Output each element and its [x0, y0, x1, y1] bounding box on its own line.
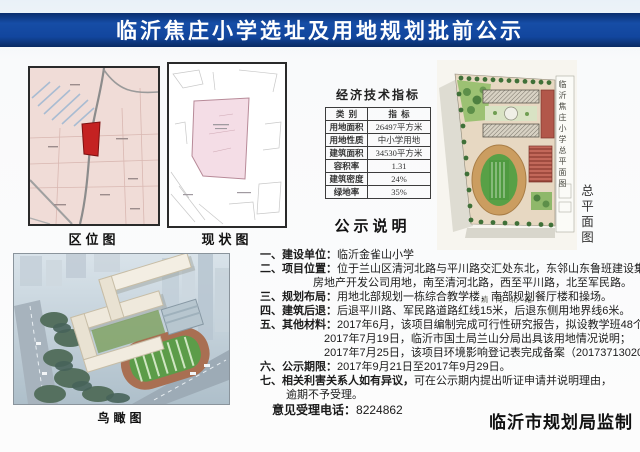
- notice-line: 七、相关利害关系人如有异议，可在公示期内提出听证申请并说明理由，: [260, 374, 632, 388]
- notice-line: 三、规划布局：用地北部规划一栋综合教学楼，南部规划餐厅楼和操场。: [260, 290, 632, 304]
- notice-line: 一、建设单位：临沂金雀山小学: [260, 248, 632, 262]
- table-row: 建筑面积34530平方米: [326, 147, 431, 160]
- notice-line: 2017年7月19日，临沂市国土局兰山分局出具该用地情况说明；: [260, 332, 632, 346]
- status-map: [167, 62, 287, 228]
- row-value: 34530平方米: [368, 147, 431, 160]
- site-plan-graphic: [437, 60, 577, 250]
- row-label: 建筑面积: [326, 147, 368, 160]
- site-plan-inner-title: 临沂焦庄小学总平面图: [557, 80, 568, 190]
- location-map-caption: 区位图: [28, 229, 160, 248]
- notice-section-title: 公示说明: [300, 215, 445, 236]
- phone-number: 8224862: [356, 403, 403, 417]
- table-row: 建筑密度24%: [326, 173, 431, 186]
- row-label: 容积率: [326, 160, 368, 173]
- contact-phone-line: 意见受理电话：8224862: [272, 401, 403, 418]
- notice-line: 二、项目位置：位于兰山区清河北路与平川路交汇处东北，东邻山东鲁班建设集团: [260, 262, 632, 276]
- planning-notice-poster: 临沂焦庄小学选址及用地规划批前公示: [0, 0, 640, 452]
- birdseye-graphic: [14, 254, 229, 404]
- row-label: 用地性质: [326, 134, 368, 147]
- notice-line: 四、建筑后退：后退平川路、军民路道路红线15米，后退东侧用地界线6米。: [260, 304, 632, 318]
- row-value: 35%: [368, 186, 431, 199]
- status-map-caption: 现状图: [167, 229, 287, 248]
- row-value: 1.31: [368, 160, 431, 173]
- col-header-value: 指 标: [368, 108, 431, 121]
- table-row: 用地性质中小学用地: [326, 134, 431, 147]
- notice-line: 五、其他材料：2017年6月，该项目编制完成可行性研究报告，拟设教学班48个，: [260, 318, 632, 332]
- table-row: 绿地率35%: [326, 186, 431, 199]
- phone-label: 意见受理电话：: [272, 403, 356, 417]
- notice-list: 一、建设单位：临沂金雀山小学 二、项目位置：位于兰山区清河北路与平川路交汇处东北…: [260, 248, 632, 402]
- indicators-table: 类 别 指 标 用地面积26497平方米 用地性质中小学用地 建筑面积34530…: [325, 107, 431, 199]
- row-value: 中小学用地: [368, 134, 431, 147]
- status-map-graphic: [169, 64, 285, 226]
- row-value: 26497平方米: [368, 121, 431, 134]
- page-title: 临沂焦庄小学选址及用地规划批前公示: [116, 15, 524, 45]
- notice-line: 2017年7月25日，该项目环境影响登记表完成备案（20173713020000…: [260, 346, 632, 360]
- row-label: 用地面积: [326, 121, 368, 134]
- birdseye-caption: 鸟瞰图: [13, 409, 230, 426]
- notice-line: 逾期不予受理。: [260, 388, 632, 402]
- row-label: 建筑密度: [326, 173, 368, 186]
- title-banner: 临沂焦庄小学选址及用地规划批前公示: [0, 13, 640, 47]
- notice-line: 六、公示期限：2017年9月21日至2017年9月29日。: [260, 360, 632, 374]
- indicators-title: 经济技术指标: [322, 86, 434, 103]
- location-map: [28, 66, 160, 226]
- table-row: 用地面积26497平方米: [326, 121, 431, 134]
- indicators-panel: 经济技术指标 类 别 指 标 用地面积26497平方米 用地性质中小学用地 建筑…: [322, 86, 434, 199]
- site-plan-map: [437, 60, 577, 250]
- producer-signature: 临沂市规划局监制: [489, 408, 633, 433]
- location-map-graphic: [30, 68, 158, 224]
- birdseye-render: [13, 253, 230, 405]
- col-header-category: 类 别: [326, 108, 368, 121]
- row-value: 24%: [368, 173, 431, 186]
- row-label: 绿地率: [326, 186, 368, 199]
- table-row: 容积率1.31: [326, 160, 431, 173]
- notice-line: 房地产开发公司用地，南至清河北路，西至平川路，北至军民路。: [260, 276, 632, 290]
- site-plan-caption: 总平面图: [577, 184, 596, 246]
